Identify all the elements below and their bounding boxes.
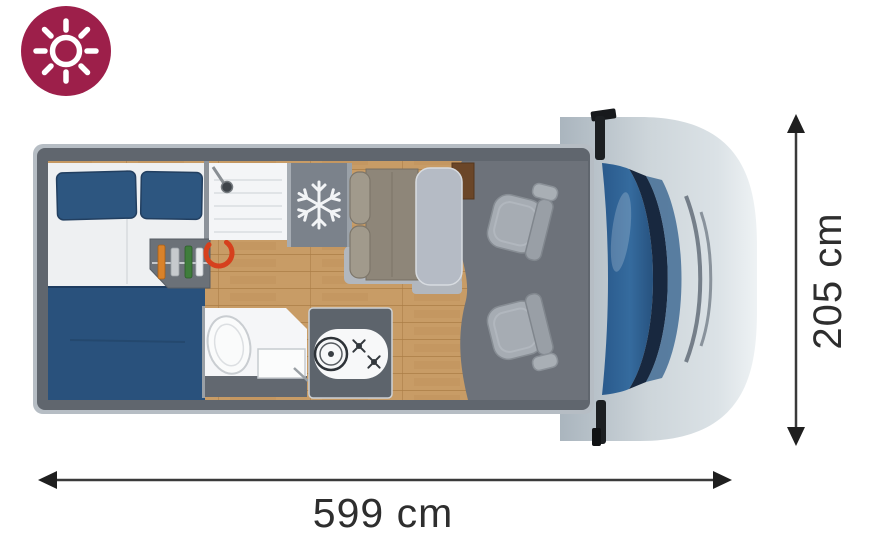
length-label: 599 cm: [313, 490, 453, 535]
bathroom: [202, 306, 308, 398]
arrowhead-up-icon: [787, 114, 805, 133]
bed-blanket: [48, 286, 205, 400]
fridge-freezer: [287, 163, 352, 247]
divider-left: [287, 163, 291, 247]
arrowhead-down-icon: [787, 427, 805, 446]
bed-pillow-right: [141, 171, 203, 219]
bottle-orange: [158, 245, 165, 279]
kitchen-unit: [309, 308, 392, 398]
shower-head-icon: [222, 182, 233, 193]
dinette: [350, 168, 462, 285]
bathroom-counter: [205, 376, 307, 397]
bench-cushion-bottom: [350, 226, 370, 278]
bathroom-wall: [202, 306, 205, 398]
shower-tray: [209, 163, 287, 240]
bathroom-sink: [258, 349, 305, 378]
sun-badge: [21, 6, 111, 96]
floorplan-canvas: 599 cm 205 cm: [0, 0, 876, 535]
kitchen-sink: [315, 338, 347, 370]
shower: [209, 163, 287, 240]
dinette-table: [416, 168, 462, 285]
bench-cushion-top: [350, 172, 370, 224]
floorplan-stage: 599 cm 205 cm: [0, 0, 876, 535]
bed-side-trim: [204, 161, 209, 245]
hob-sink-panel: [314, 329, 388, 379]
length-dimension: 599 cm: [38, 471, 732, 535]
arrowhead-right-icon: [713, 471, 732, 489]
arrowhead-left-icon: [38, 471, 57, 489]
bottle-green: [185, 246, 192, 278]
bed-pillow-left: [56, 171, 136, 220]
width-dimension: 205 cm: [787, 114, 850, 446]
bottle-grey: [171, 248, 179, 276]
width-label: 205 cm: [806, 212, 850, 349]
bottle-white: [196, 248, 203, 276]
